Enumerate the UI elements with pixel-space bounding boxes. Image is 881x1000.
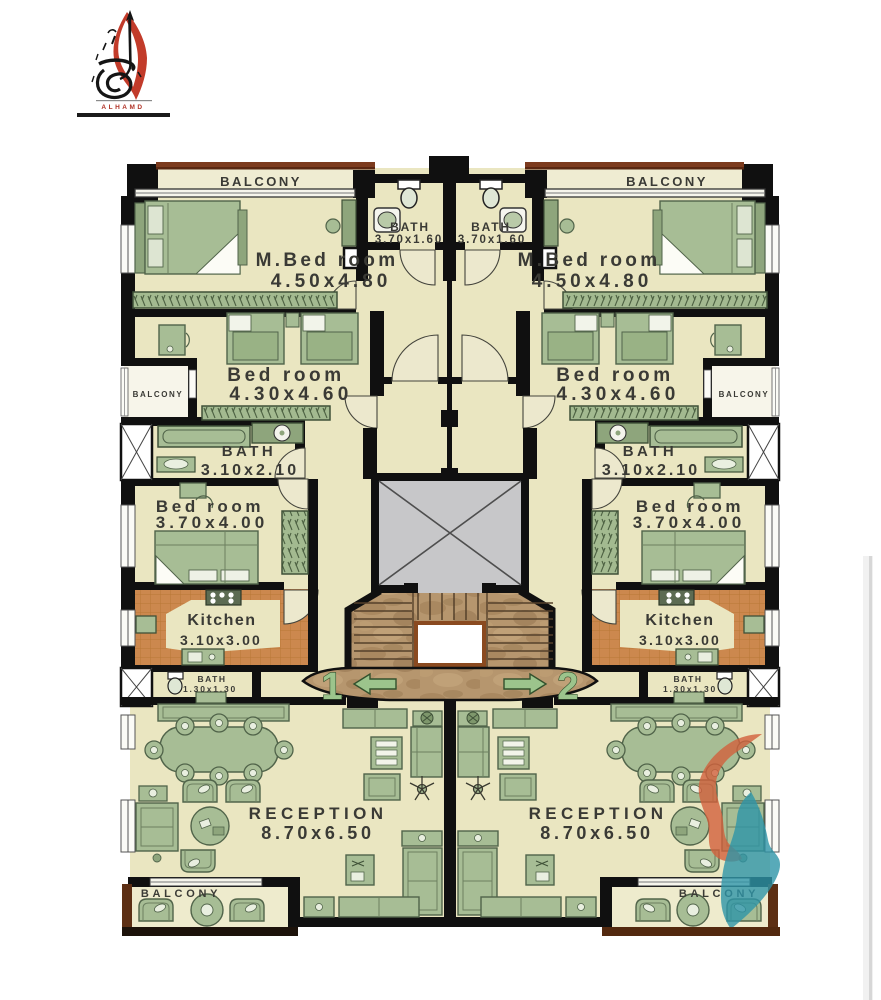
svg-text:4.50x4.80: 4.50x4.80 bbox=[532, 271, 653, 292]
svg-text:ALHAMD: ALHAMD bbox=[101, 104, 144, 111]
svg-text:RECEPTION: RECEPTION bbox=[529, 804, 668, 823]
svg-text:4.50x4.80: 4.50x4.80 bbox=[271, 271, 392, 292]
svg-text:BALCONY: BALCONY bbox=[220, 174, 302, 189]
svg-text:3.70x1.60: 3.70x1.60 bbox=[375, 234, 443, 246]
svg-text:1.30x1.30: 1.30x1.30 bbox=[663, 684, 717, 694]
svg-text:M.Bed room: M.Bed room bbox=[256, 250, 399, 271]
svg-text:Bed room: Bed room bbox=[556, 365, 673, 386]
svg-text:BATH: BATH bbox=[674, 674, 703, 684]
svg-text:1: 1 bbox=[321, 666, 342, 708]
svg-text:M.Bed room: M.Bed room bbox=[518, 250, 661, 271]
svg-text:3.10x3.00: 3.10x3.00 bbox=[180, 632, 262, 648]
svg-text:BATH: BATH bbox=[623, 443, 678, 460]
svg-text:BATH: BATH bbox=[222, 443, 277, 460]
svg-text:BALCONY: BALCONY bbox=[141, 888, 221, 900]
svg-text:RECEPTION: RECEPTION bbox=[249, 804, 388, 823]
svg-text:Kitchen: Kitchen bbox=[187, 612, 256, 629]
svg-text:3.10x2.10: 3.10x2.10 bbox=[201, 462, 299, 479]
svg-text:8.70x6.50: 8.70x6.50 bbox=[261, 823, 374, 843]
svg-text:BALCONY: BALCONY bbox=[133, 390, 184, 399]
svg-text:3.10x3.00: 3.10x3.00 bbox=[639, 632, 721, 648]
svg-text:4.30x4.60: 4.30x4.60 bbox=[556, 384, 679, 405]
svg-text:8.70x6.50: 8.70x6.50 bbox=[540, 823, 653, 843]
svg-text:3.70x4.00: 3.70x4.00 bbox=[633, 513, 746, 532]
svg-text:4.30x4.60: 4.30x4.60 bbox=[229, 384, 352, 405]
svg-text:BALCONY: BALCONY bbox=[626, 174, 708, 189]
svg-text:BATH: BATH bbox=[471, 220, 511, 234]
svg-text:Bed room: Bed room bbox=[227, 365, 344, 386]
svg-text:3.70x4.00: 3.70x4.00 bbox=[156, 513, 269, 532]
svg-text:BATH: BATH bbox=[390, 220, 430, 234]
svg-text:3.10x2.10: 3.10x2.10 bbox=[602, 462, 700, 479]
svg-text:Kitchen: Kitchen bbox=[645, 612, 714, 629]
svg-text:BATH: BATH bbox=[198, 674, 227, 684]
svg-text:2: 2 bbox=[557, 666, 578, 708]
svg-text:3.70x1.60: 3.70x1.60 bbox=[458, 234, 526, 246]
svg-text:BALCONY: BALCONY bbox=[719, 390, 770, 399]
svg-text:1.30x1.30: 1.30x1.30 bbox=[183, 684, 237, 694]
